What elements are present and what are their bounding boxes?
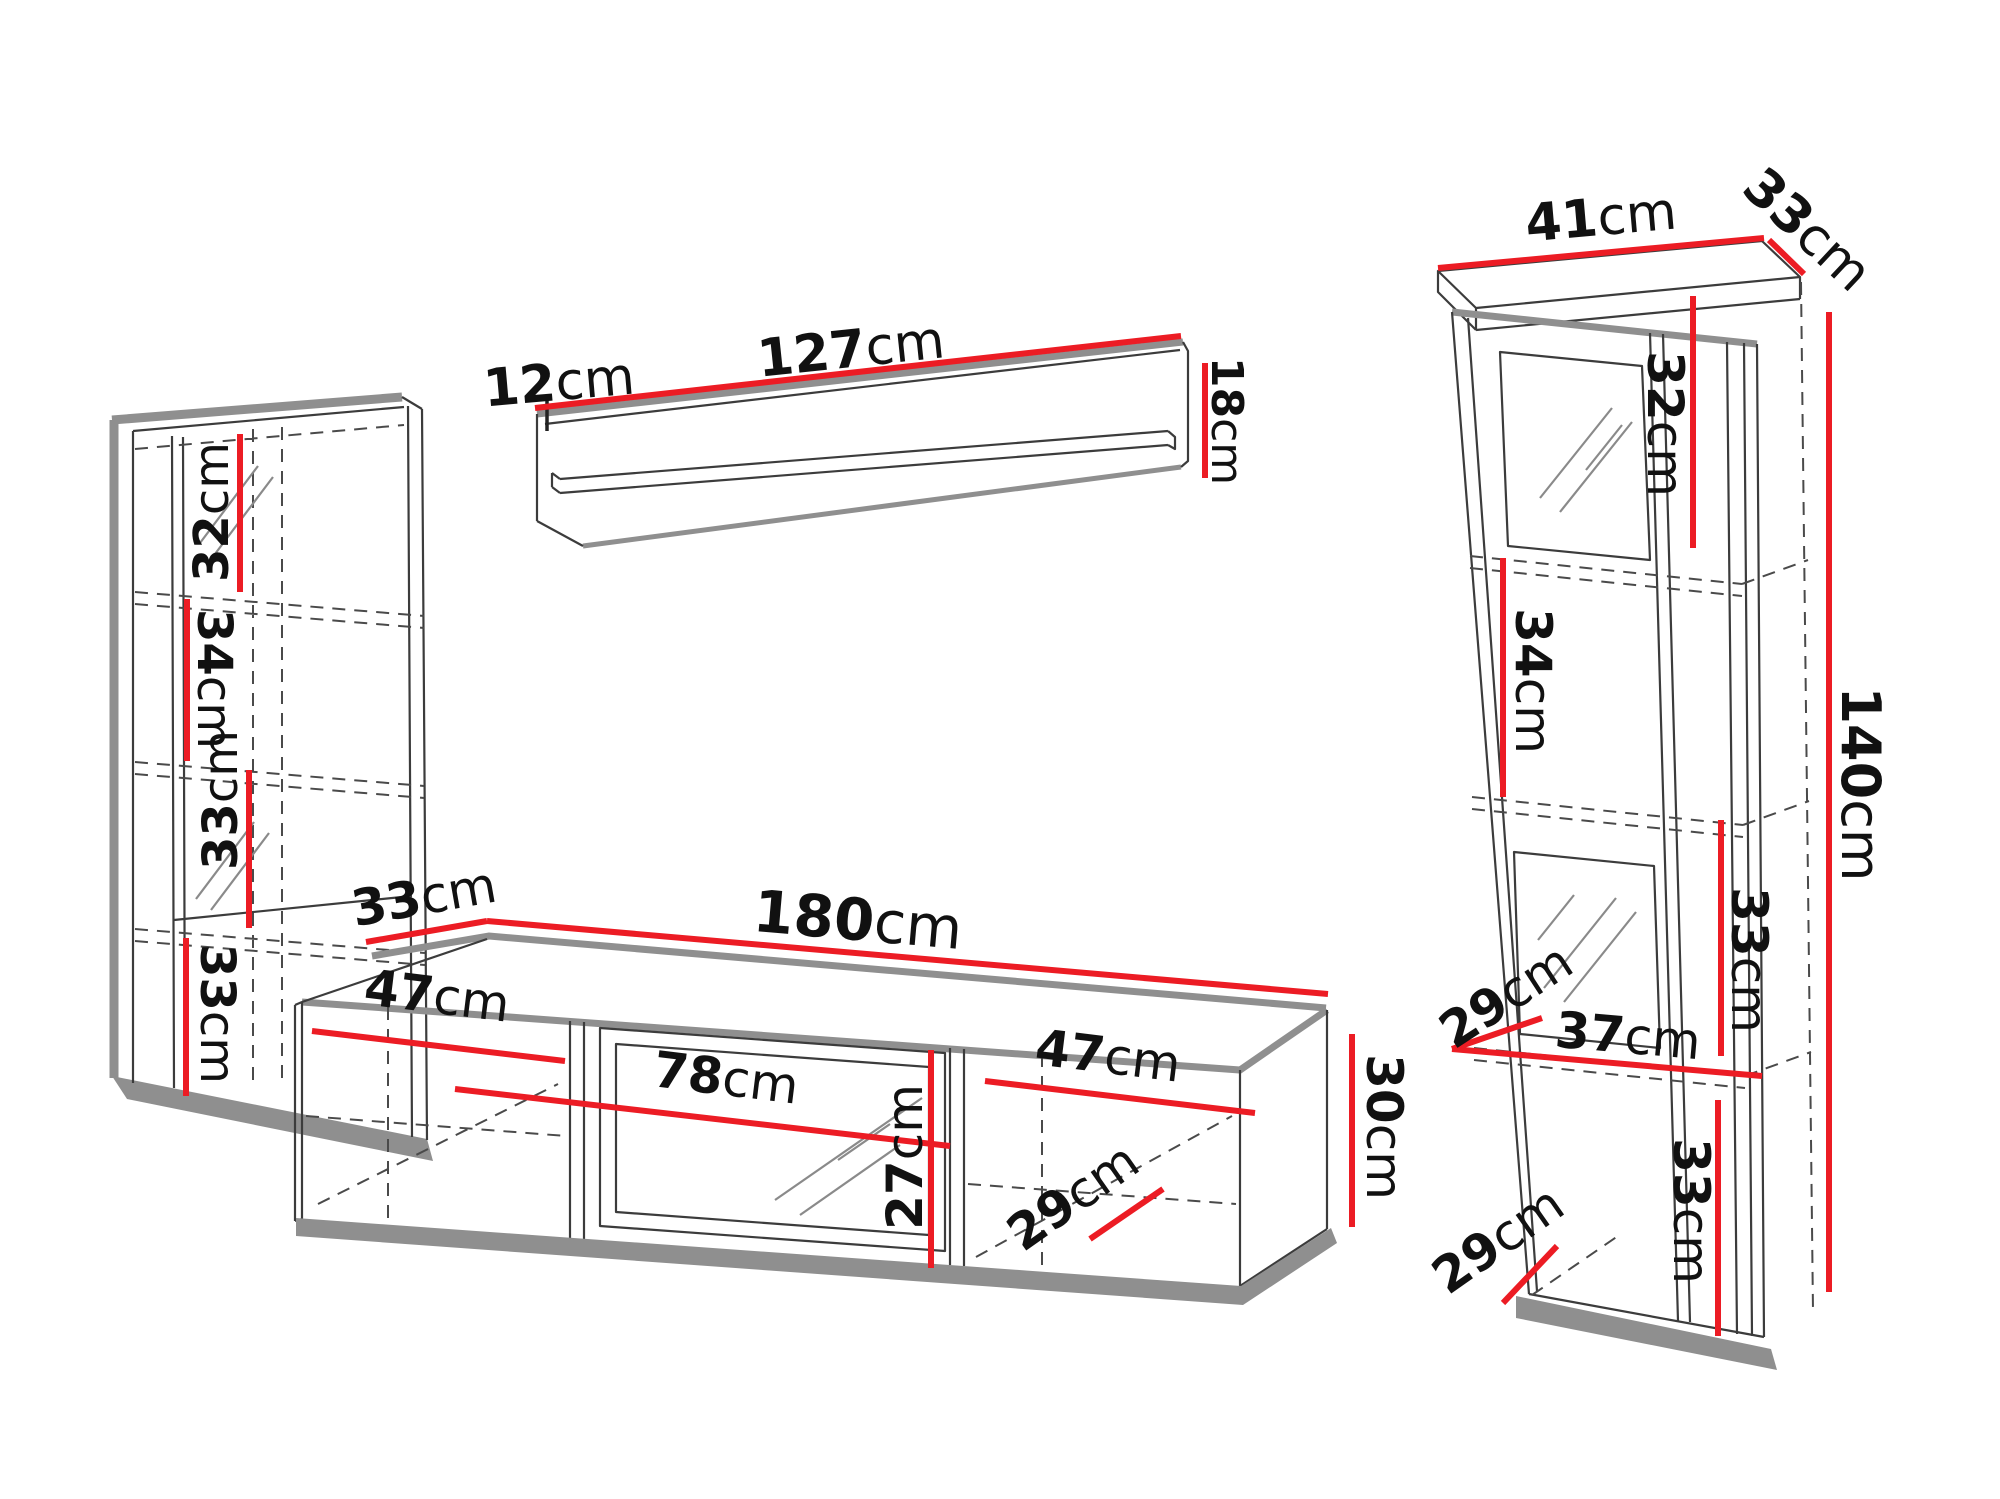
dim-unit: cm: [876, 1084, 934, 1160]
dim-unit: cm: [1202, 418, 1253, 485]
dim-value: 47: [361, 958, 437, 1024]
dim-line-tv-left-compartment: [312, 1031, 565, 1061]
dim-label-shelf-end-height: 18cm: [1202, 357, 1253, 485]
dim-label-tv-left-compartment: 47cm: [361, 958, 513, 1033]
dim-value: 127: [754, 319, 868, 390]
wall-shelf-bottom-edge: [583, 467, 1181, 546]
dim-unit: cm: [1595, 182, 1679, 249]
dim-label-left-section-3: 33cm: [193, 730, 249, 870]
tv-stand: 33cm 180cm 47cm 78cm 27cm 47cm 29cm 30cm: [295, 856, 1413, 1305]
dim-unit: cm: [1720, 957, 1778, 1033]
dim-value: 34: [1504, 608, 1562, 678]
dim-unit: cm: [184, 442, 240, 515]
dim-label-tv-glass-width: 78cm: [650, 1040, 802, 1115]
left-cabinet-outline: [112, 397, 433, 1161]
dim-label-tv-height: 30cm: [1355, 1054, 1413, 1200]
dim-unit: cm: [862, 310, 947, 378]
dim-unit: cm: [1830, 799, 1893, 881]
dim-value: 33: [189, 944, 245, 1011]
left-cabinet-dimension-labels: 32cm 34cm 33cm 33cm: [184, 442, 249, 1084]
dim-label-rc-section-1: 32cm: [1636, 351, 1694, 497]
dim-unit: cm: [1622, 1007, 1703, 1071]
dim-label-tv-inner-depth: 29cm: [997, 1131, 1150, 1262]
dim-value: 37: [1553, 1001, 1627, 1065]
dim-unit: cm: [1662, 1208, 1720, 1284]
dim-value: 30: [1355, 1054, 1413, 1124]
dim-label-tv-inner-height: 27cm: [876, 1084, 934, 1230]
left-cabinet-details: [133, 397, 427, 1140]
dim-label-left-section-4: 33cm: [189, 944, 245, 1084]
dim-label-tv-right-compartment: 47cm: [1032, 1018, 1184, 1093]
dim-value: 32: [184, 515, 240, 582]
dim-value: 33: [347, 869, 426, 938]
wall-shelf-dimension-labels: 12cm 127cm 18cm: [481, 310, 1253, 485]
dim-unit: cm: [1636, 421, 1694, 497]
left-cabinet-base-slab: [112, 1076, 433, 1161]
dim-label-tv-depth: 33cm: [347, 856, 501, 938]
wall-shelf: 12cm 127cm 18cm: [481, 310, 1253, 546]
dim-label-rc-section-2: 34cm: [1504, 608, 1562, 754]
dim-unit: cm: [430, 967, 513, 1034]
dim-unit: cm: [1504, 678, 1562, 754]
right-cabinet-outline: [1438, 241, 1813, 1370]
dim-value: 18: [1202, 357, 1253, 418]
dim-value: 47: [1032, 1018, 1108, 1084]
right-cabinet: 41cm 33cm 32cm 34cm 140cm 33cm 29cm 37cm…: [1422, 156, 1893, 1370]
dim-value: 180: [751, 877, 878, 955]
dim-label-left-section-1: 32cm: [184, 442, 240, 582]
dim-label-rc-top-width: 41cm: [1523, 182, 1679, 255]
dim-unit: cm: [416, 856, 501, 926]
left-cabinet: 32cm 34cm 33cm 33cm: [112, 397, 433, 1161]
dim-value: 33: [193, 803, 249, 870]
dim-value: 140: [1830, 686, 1893, 799]
dim-label-rc-section-4: 33cm: [1662, 1138, 1720, 1284]
furniture-dimension-diagram: 32cm 34cm 33cm 33cm 12cm 127cm 18cm: [0, 0, 2000, 1499]
dim-unit: cm: [189, 1011, 245, 1084]
dim-value: 78: [650, 1040, 726, 1106]
diagram-canvas: 32cm 34cm 33cm 33cm 12cm 127cm 18cm: [0, 0, 2000, 1499]
dim-unit: cm: [1355, 1124, 1413, 1200]
dim-label-rc-total-height: 140cm: [1830, 686, 1893, 881]
dim-unit: cm: [719, 1049, 802, 1116]
dim-label-rc-section-3: 33cm: [1720, 887, 1778, 1033]
dim-label-tv-width: 180cm: [751, 877, 966, 963]
tv-stand-base-plinth: [296, 1218, 1337, 1305]
dim-value: 33: [1662, 1138, 1720, 1208]
dim-label-shelf-width: 127cm: [754, 310, 947, 389]
dim-value: 27: [876, 1160, 934, 1230]
dim-value: 34: [186, 609, 242, 676]
left-cabinet-top-edge: [112, 397, 402, 420]
right-cabinet-dimension-lines: [1438, 238, 1829, 1336]
dim-unit: cm: [193, 730, 249, 803]
dim-value: 33: [1720, 887, 1778, 957]
dim-value: 41: [1523, 188, 1600, 254]
dim-label-rc-shelf-depth-lower: 29cm: [1422, 1174, 1575, 1305]
dim-unit: cm: [871, 888, 965, 963]
dim-label-left-section-2: 34cm: [186, 609, 242, 749]
dim-value: 32: [1636, 351, 1694, 421]
dim-value: 12: [481, 353, 558, 419]
dim-unit: cm: [1101, 1027, 1184, 1094]
dim-unit: cm: [553, 347, 637, 414]
